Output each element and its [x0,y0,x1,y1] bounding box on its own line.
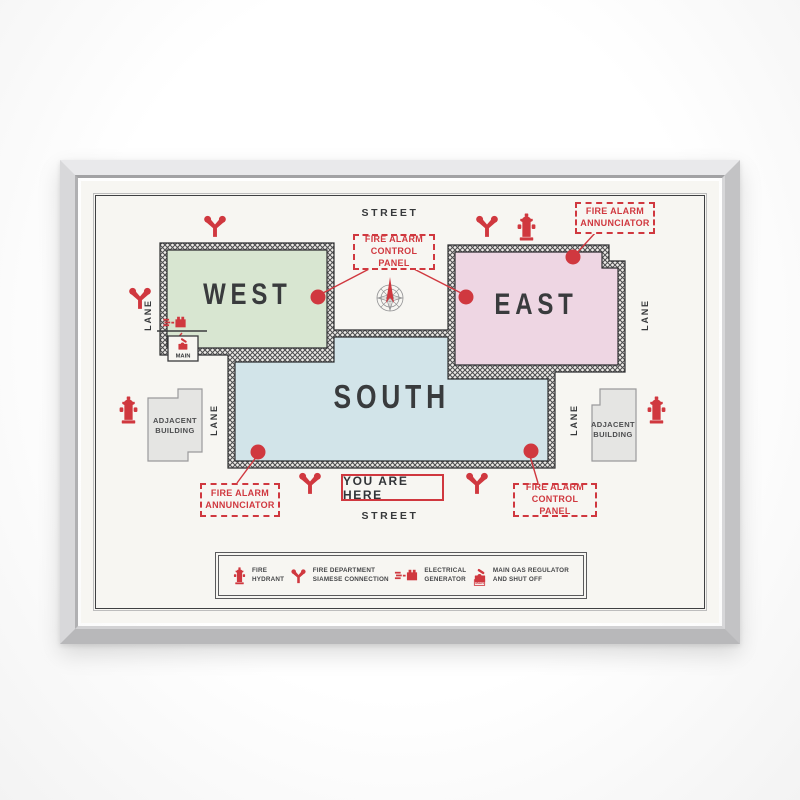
fire-hydrant-icon [518,214,536,241]
adjacent-building-left-shape [148,389,202,461]
device-location-dot [566,250,581,265]
legend-item-gas-regulator: MAIN MAIN GAS REGULATOR AND SHUT OFF [472,566,569,586]
electrical-generator-icon [394,569,418,582]
callout-fire-alarm-control-panel-top: FIRE ALARM CONTROL PANEL [353,234,435,270]
gas-regulator-icon: MAIN [472,566,487,586]
fire-hydrant-icon [120,397,138,424]
fire-hydrant-icon [233,566,246,585]
main-gas-tag: MAIN [176,354,191,360]
siamese-connection-icon [466,473,488,494]
main-gas-box: MAIN [168,336,198,361]
siamese-connection-icon [129,288,151,309]
legend-item-siamese-connection: FIRE DEPARTMENT SIAMESE CONNECTION [290,567,389,585]
east-building-fill [455,252,618,365]
callout-fire-alarm-control-panel-bottom: FIRE ALARM CONTROL PANEL [513,483,597,517]
you-are-here-marker: YOU ARE HERE [341,474,444,501]
wall-background: MAIN STREET STREET LANE LANE LANE LANE W… [0,0,800,800]
adjacent-building-right-shape [592,389,636,461]
device-location-dot [459,290,474,305]
fire-hydrant-icon [648,397,666,424]
device-location-dot [311,290,326,305]
svg-text:MAIN: MAIN [475,580,484,584]
legend-item-fire-hydrant: FIRE HYDRANT [233,566,284,585]
device-location-dot [524,444,539,459]
legend-item-electrical-generator: ELECTRICAL GENERATOR [394,567,466,585]
callout-fire-alarm-annunciator-top: FIRE ALARM ANNUNCIATOR [575,202,655,234]
siamese-connection-icon [290,568,307,584]
device-location-dot [251,445,266,460]
compass-rose-icon [377,277,403,311]
siamese-connection-icon [204,216,226,237]
map-legend: FIRE HYDRANT FIRE DEPARTMENT SIAMESE CON… [215,552,587,599]
siamese-connection-icon [476,216,498,237]
legend-inner-border: FIRE HYDRANT FIRE DEPARTMENT SIAMESE CON… [218,555,584,596]
west-building-fill [167,250,327,348]
site-map-drawing: MAIN [0,0,800,800]
siamese-connection-icon [299,473,321,494]
callout-fire-alarm-annunciator-bottom: FIRE ALARM ANNUNCIATOR [200,483,280,517]
